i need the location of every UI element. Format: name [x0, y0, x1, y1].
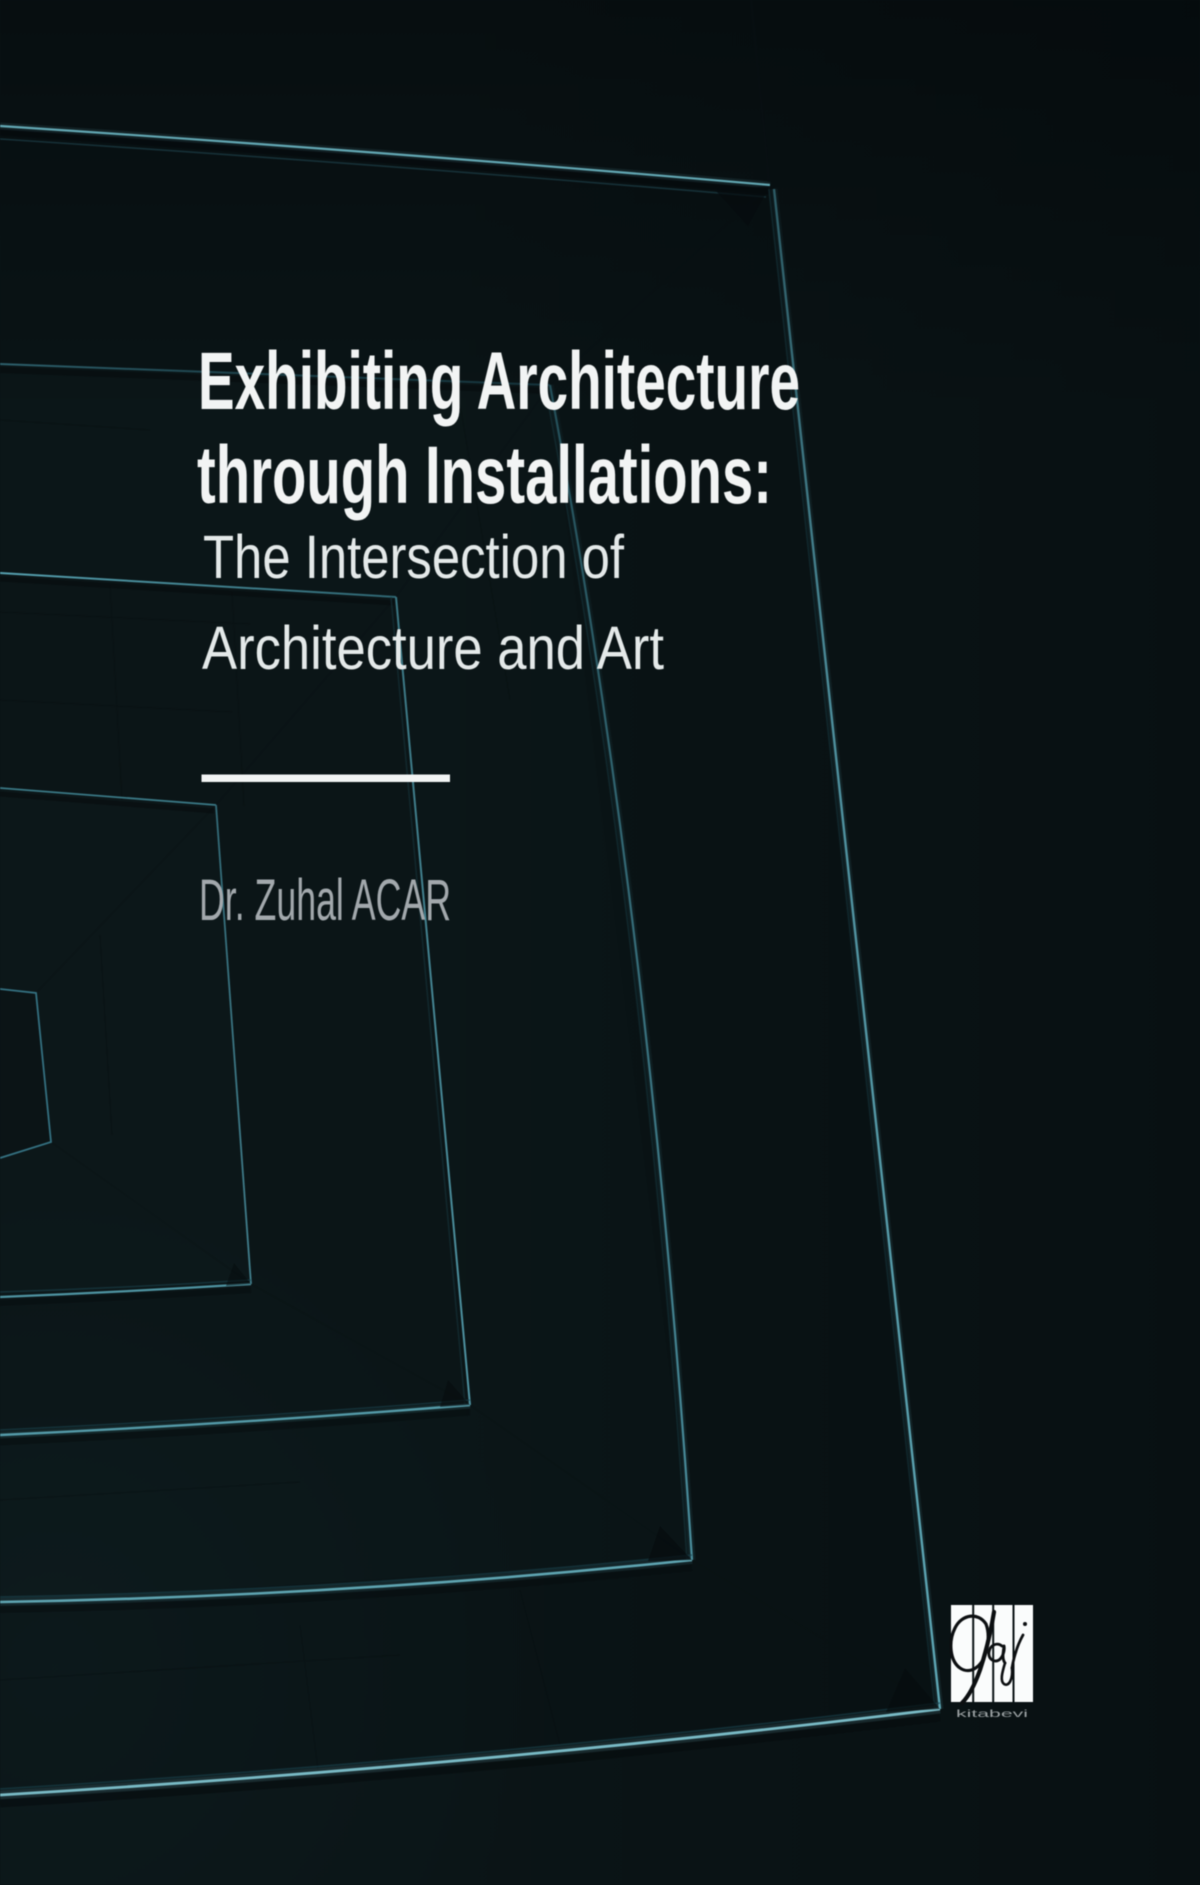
svg-text:Dr. Zuhal ACAR: Dr. Zuhal ACAR	[199, 868, 451, 933]
svg-text:kitabevi: kitabevi	[956, 1708, 1028, 1720]
svg-text:through Installations:: through Installations:	[197, 430, 772, 521]
svg-text:Architecture and Art: Architecture and Art	[202, 614, 664, 683]
svg-text:The Intersection of: The Intersection of	[203, 523, 625, 592]
svg-text:Exhibiting Architecture: Exhibiting Architecture	[198, 336, 800, 427]
